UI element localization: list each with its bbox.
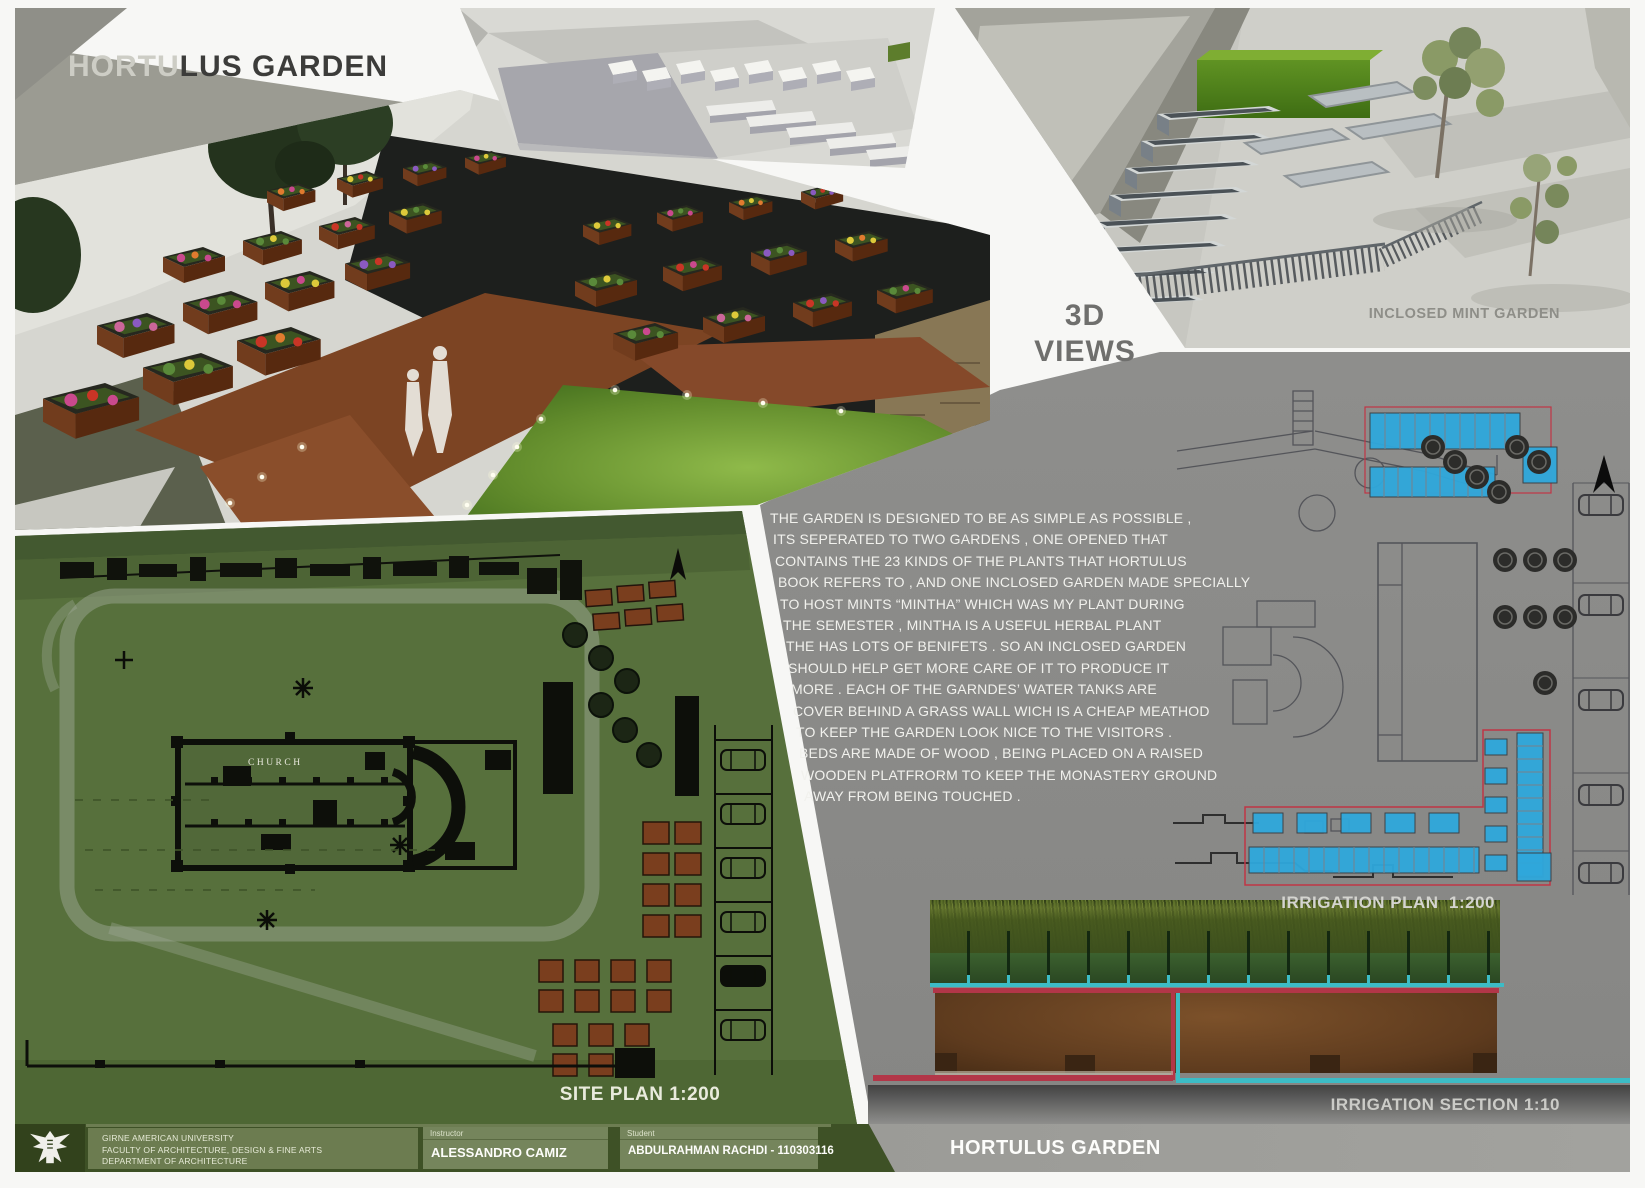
description-line: TO HOST MINTS “MINTHA” WHICH WAS MY PLAN… <box>780 594 1250 615</box>
footing-block <box>1310 1055 1340 1073</box>
project-description: THE GARDEN IS DESIGNED TO BE AS SIMPLE A… <box>770 508 1250 808</box>
description-line: MORE . EACH OF THE GARNDES’ WATER TANKS … <box>791 679 1250 700</box>
footing-block <box>1473 1053 1497 1073</box>
instructor-name: ALESSANDRO CAMIZ <box>423 1140 608 1160</box>
description-line: THE SEMESTER , MINTHA IS A USEFUL HERBAL… <box>783 615 1250 636</box>
board-title-dark-part: LUS GARDEN <box>180 50 388 83</box>
description-line: CONTAINS THE 23 KINDS OF THE PLANTS THAT… <box>775 551 1250 572</box>
site-plan-art <box>15 500 872 1124</box>
description-line: THE HAS LOTS OF BENIFETS . SO AN INCLOSE… <box>786 636 1250 657</box>
massing-model-art <box>458 8 935 168</box>
views-3d-line1: 3D <box>1015 298 1155 334</box>
section-label-bar: IRRIGATION SECTION 1:10 <box>868 1085 1630 1124</box>
student-box: Student ABDULRAHMAN RACHDI - 110303116 <box>620 1127 818 1169</box>
university-info: GIRNE AMERICAN UNIVERSITY FACULTY OF ARC… <box>88 1128 418 1169</box>
irrigation-section-label: IRRIGATION SECTION 1:10 <box>1331 1095 1560 1114</box>
lateral-water-pipe <box>930 983 1504 987</box>
description-line: THE GARDEN IS DESIGNED TO BE AS SIMPLE A… <box>770 508 1250 529</box>
footing-block <box>935 1053 957 1073</box>
presentation-board: HORTULUS GARDEN <box>0 0 1645 1188</box>
mint-garden-art <box>945 8 1630 348</box>
student-label: Student <box>620 1127 818 1140</box>
bottom-water-pipe <box>1176 1078 1630 1083</box>
irrigation-plan-label: IRRIGATION PLAN 1:200 <box>1160 893 1495 913</box>
footer-left-bar: GIRNE AMERICAN UNIVERSITY FACULTY OF ARC… <box>15 1124 895 1172</box>
irrigated-beds-group <box>1249 413 1557 881</box>
description-line: ITS SEPERATED TO TWO GARDENS , ONE OPENE… <box>773 529 1250 550</box>
sprinkler-connectors <box>930 975 1500 983</box>
soil-body <box>935 993 1497 1073</box>
instructor-box: Instructor ALESSANDRO CAMIZ <box>423 1127 608 1169</box>
site-plan-drawing <box>15 500 872 1124</box>
board-title: HORTULUS GARDEN <box>68 50 388 84</box>
footer-project-title: HORTULUS GARDEN <box>950 1124 1161 1172</box>
parking-cars-group <box>1573 483 1629 883</box>
description-line: SHOULD HELP GET MORE CARE OF IT TO PRODU… <box>788 658 1250 679</box>
description-line: AWAY FROM BEING TOUCHED . <box>804 786 1250 807</box>
department-name: DEPARTMENT OF ARCHITECTURE <box>102 1156 418 1168</box>
site-plan-label: SITE PLAN 1:200 <box>535 1084 745 1106</box>
render-mint-garden <box>945 8 1630 348</box>
mint-garden-label: INCLOSED MINT GARDEN <box>1320 306 1560 322</box>
description-line: COVER BEHIND A GRASS WALL WICH IS A CHEA… <box>793 701 1250 722</box>
instructor-label: Instructor <box>423 1127 608 1140</box>
church-label: CHURCH <box>248 758 303 768</box>
north-arrow-icon <box>1593 455 1615 493</box>
vertical-supply-pipe <box>1171 988 1175 1080</box>
university-name: GIRNE AMERICAN UNIVERSITY <box>102 1133 418 1145</box>
render-massing-model <box>458 8 935 168</box>
description-line: WOODEN PLATFRORM TO KEEP THE MONASTERY G… <box>801 765 1250 786</box>
student-name: ABDULRAHMAN RACHDI - 110303116 <box>620 1140 818 1157</box>
description-line: BEDS ARE MADE OF WOOD , BEING PLACED ON … <box>799 743 1250 764</box>
irrigation-section-drawing <box>915 893 1630 1083</box>
board-title-light-part: HORTU <box>68 50 180 83</box>
vertical-water-pipe <box>1176 993 1180 1081</box>
views-3d-label: 3D VIEWS <box>1015 298 1155 370</box>
university-logo-eagle-icon <box>27 1129 73 1167</box>
faculty-name: FACULTY OF ARCHITECTURE, DESIGN & FINE A… <box>102 1145 418 1157</box>
views-3d-line2: VIEWS <box>1015 334 1155 370</box>
description-line: BOOK REFERS TO , AND ONE INCLOSED GARDEN… <box>778 572 1250 593</box>
bottom-supply-pipe <box>873 1075 1173 1081</box>
description-line: TO KEEP THE GARDEN LOOK NICE TO THE VISI… <box>796 722 1250 743</box>
